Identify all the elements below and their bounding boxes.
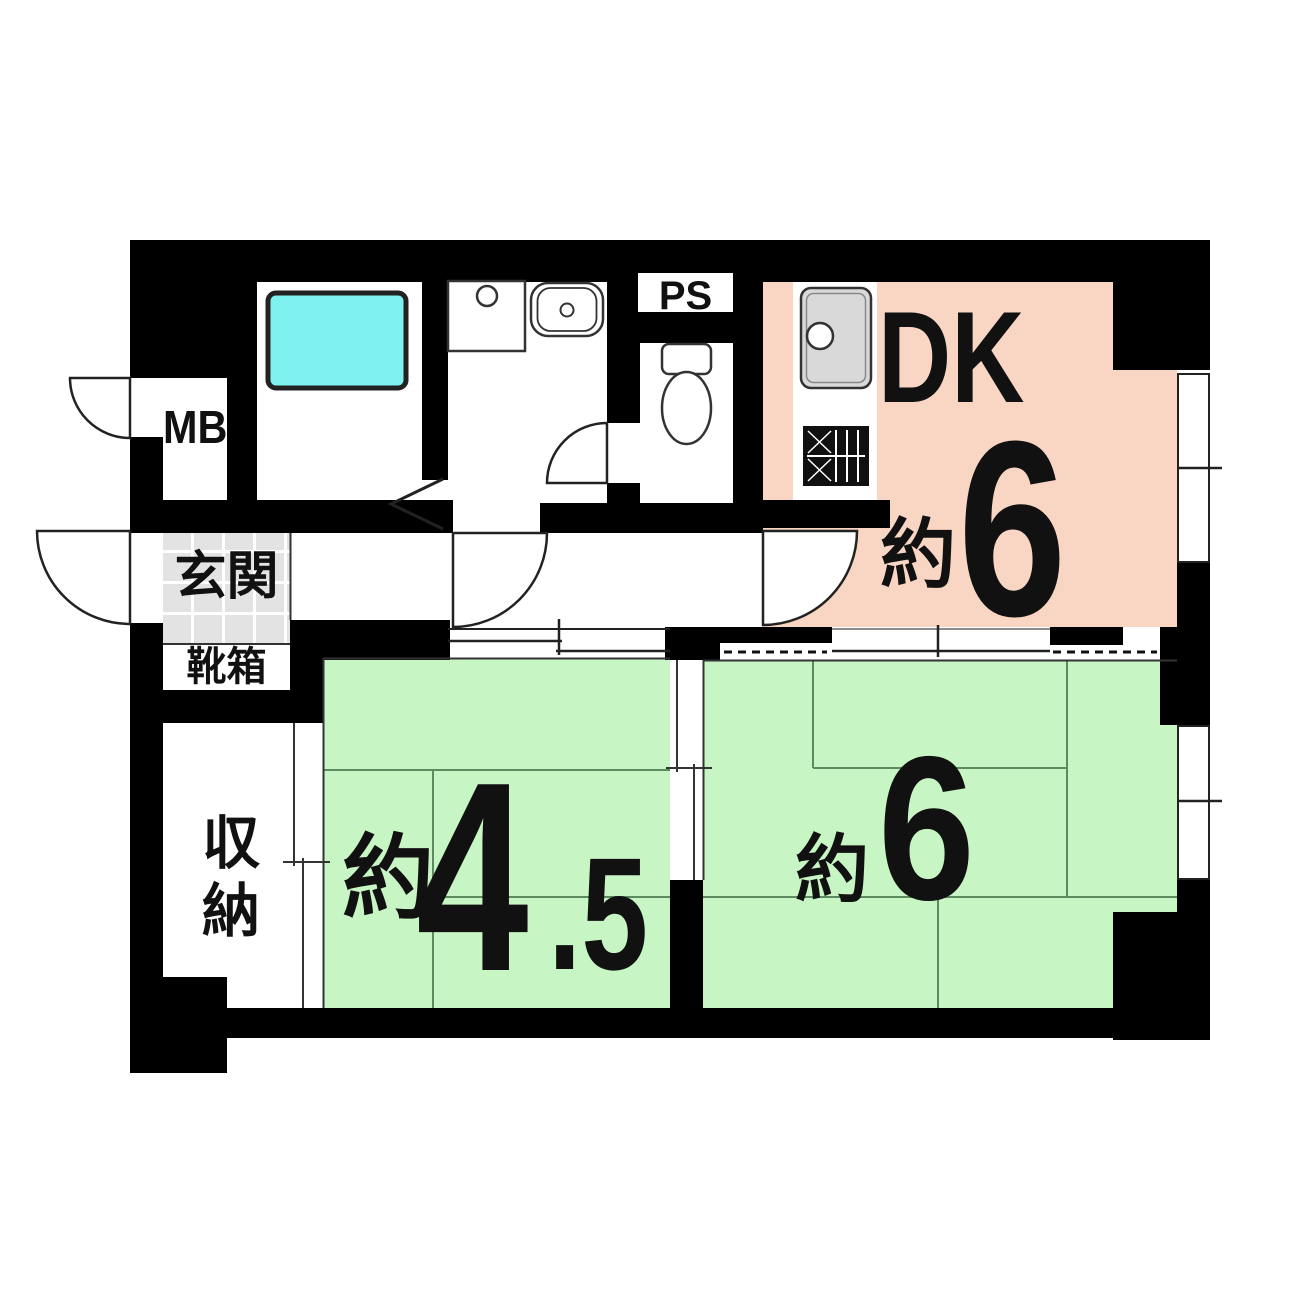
toilet-tank-icon: [662, 344, 711, 374]
sliding-door-corridor-west-room: [448, 619, 670, 655]
washbasin-drain-icon: [561, 304, 574, 317]
east-room-approx-label: 約: [795, 833, 869, 907]
door-arc-toilet-icon: [547, 423, 607, 483]
entrance-label: 玄関: [166, 551, 287, 603]
dk-size-label: 6: [958, 404, 1066, 654]
shoe-box-label: 靴箱: [163, 647, 290, 687]
meter-box-label: MB: [163, 404, 221, 450]
storage-label: 収納: [196, 812, 254, 948]
door-arc-entrance-icon: [37, 531, 130, 624]
east-room-size-label: 6: [878, 726, 975, 931]
floor-plan: MB PS 玄関 靴箱 収納 DK 約 6 約 4 .5 約 6: [0, 0, 1300, 1300]
door-arc-washroom-icon: [453, 533, 547, 627]
bathtub-icon: [268, 293, 406, 388]
window-ticks: [1177, 468, 1222, 801]
washing-machine-drain-icon: [477, 286, 497, 306]
toilet-bowl-icon: [662, 372, 711, 444]
west-room-size-label: 4: [416, 743, 529, 1013]
gas-stove-icon: [803, 426, 869, 486]
pipe-space-label: PS: [638, 276, 733, 316]
dk-approx-label: 約: [880, 518, 956, 594]
sliding-door-between-rooms: [666, 660, 712, 880]
door-arc-meter-box-icon: [70, 378, 130, 438]
west-room-size-frac-label: .5: [548, 834, 648, 994]
kitchen-faucet-icon: [807, 323, 833, 349]
door-arc-dk-icon: [763, 531, 857, 625]
folding-door-bath-icon: [391, 479, 443, 529]
